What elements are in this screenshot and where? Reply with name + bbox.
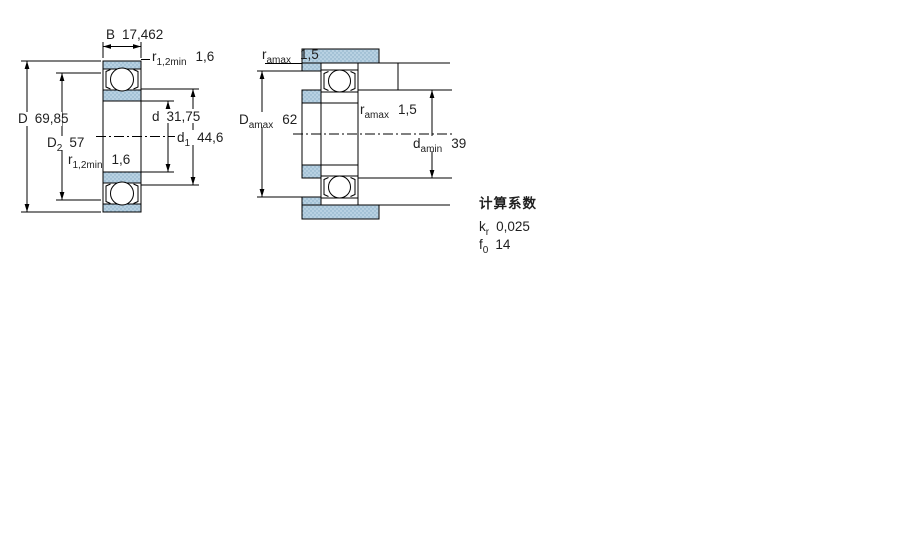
shaft-shoulder-bottom (302, 165, 321, 178)
bearing-technical-drawing-page: B17,462 r1,2min1,6 D69,85 D257 d31,75 d1… (0, 0, 900, 560)
dim-label-d1: d144,6 (177, 130, 223, 149)
shaft-shoulder-top (302, 90, 321, 103)
dim-label-B: B17,462 (106, 27, 163, 42)
calculation-factors-title: 计算系数 (479, 195, 537, 211)
calculation-factors-block: 计算系数 kr0,025 f014 (479, 195, 537, 256)
housing-bottom (302, 205, 379, 219)
ball-bottom (111, 182, 134, 205)
housing-shoulder-top (302, 63, 321, 71)
housing-shoulder-bottom (302, 197, 321, 205)
bearing-body (96, 61, 177, 212)
drawing-svg: B17,462 r1,2min1,6 D69,85 D257 d31,75 d1… (0, 0, 900, 560)
mounted-bearing-body (293, 63, 453, 205)
dim-label-D: D69,85 (18, 111, 69, 126)
dim-label-ra-mid: ramax1,5 (360, 102, 417, 121)
factor-f0: f014 (479, 237, 511, 256)
bearing-cross-section-view: B17,462 r1,2min1,6 D69,85 D257 d31,75 d1… (16, 27, 223, 212)
ball-bottom (329, 176, 351, 198)
inner-ring-top (103, 90, 141, 101)
factor-kr: kr0,025 (479, 219, 530, 238)
dim-label-d: d31,75 (152, 109, 200, 124)
ball-top (111, 68, 134, 91)
bearing-abutment-view: ramax1,5 Damax62 ramax1,5 damin39 (237, 47, 473, 219)
inner-ring-bottom (103, 172, 141, 183)
dim-label-r-top: r1,2min1,6 (152, 49, 214, 68)
ball-top (329, 70, 351, 92)
